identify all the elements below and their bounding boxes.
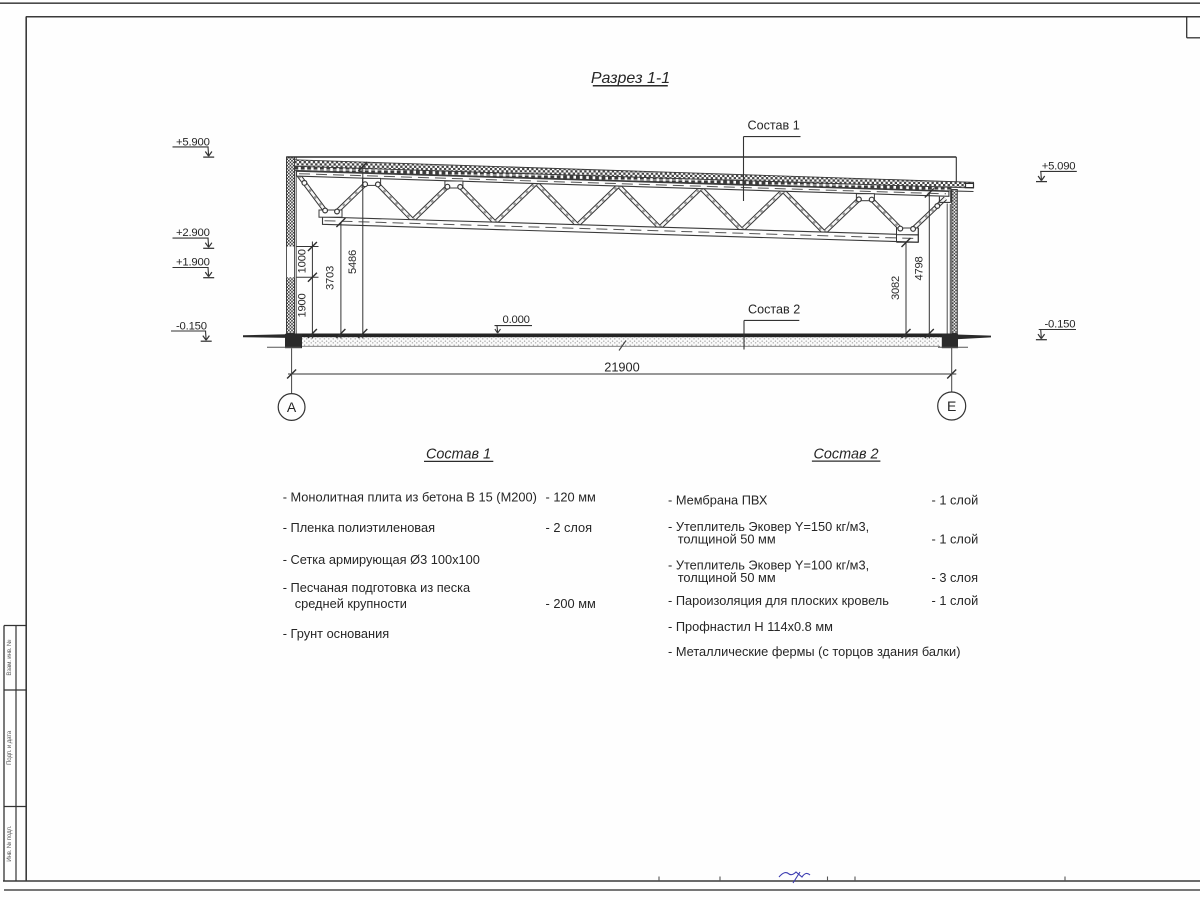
- svg-text:- 3 слоя: - 3 слоя: [932, 570, 979, 585]
- svg-text:- Профнастил Н 114х0.8 мм: - Профнастил Н 114х0.8 мм: [668, 619, 833, 634]
- svg-text:толщиной 50 мм: толщиной 50 мм: [678, 532, 776, 547]
- svg-text:5486: 5486: [347, 250, 359, 274]
- svg-text:Подп. и дата: Подп. и дата: [6, 730, 13, 765]
- svg-text:+1.900: +1.900: [176, 256, 210, 268]
- svg-text:- Пленка полиэтиленовая: - Пленка полиэтиленовая: [283, 520, 435, 535]
- svg-text:- Грунт основания: - Грунт основания: [283, 626, 390, 641]
- svg-text:Разрез 1-1: Разрез 1-1: [591, 70, 670, 87]
- svg-text:+2.900: +2.900: [176, 227, 210, 239]
- svg-text:Инв. № подл.: Инв. № подл.: [6, 825, 13, 862]
- svg-text:- Сетка армирующая Ø3 100х100: - Сетка армирующая Ø3 100х100: [283, 552, 480, 567]
- svg-text:средней крупности: средней крупности: [295, 596, 407, 611]
- svg-text:- Металлические фермы (с торцо: - Металлические фермы (с торцов здания б…: [668, 644, 960, 659]
- svg-text:4798: 4798: [914, 256, 926, 280]
- svg-text:21900: 21900: [604, 359, 640, 374]
- svg-text:-0.150: -0.150: [1045, 318, 1076, 330]
- svg-text:3082: 3082: [890, 276, 902, 300]
- svg-text:- 2 слоя: - 2 слоя: [546, 520, 593, 535]
- svg-text:А: А: [287, 399, 297, 415]
- svg-text:- 1 слой: - 1 слой: [932, 493, 979, 508]
- svg-text:Состав 2: Состав 2: [748, 302, 800, 316]
- svg-text:- Песчаная подготовка из песка: - Песчаная подготовка из песка: [283, 580, 471, 595]
- svg-text:0.000: 0.000: [503, 314, 530, 326]
- svg-text:- 200 мм: - 200 мм: [546, 596, 596, 611]
- svg-text:1900: 1900: [296, 293, 308, 317]
- svg-text:- 1 слой: - 1 слой: [932, 593, 979, 608]
- svg-text:толщиной 50 мм: толщиной 50 мм: [678, 570, 776, 585]
- svg-text:- Пароизоляция для плоских кро: - Пароизоляция для плоских кровель: [668, 593, 889, 608]
- svg-text:Взам. инв. №: Взам. инв. №: [6, 639, 13, 675]
- svg-text:Е: Е: [947, 398, 956, 414]
- svg-text:- Монолитная плита из бетона В: - Монолитная плита из бетона В 15 (М200): [283, 490, 537, 505]
- svg-text:Состав 1: Состав 1: [426, 446, 491, 462]
- svg-text:- 120 мм: - 120 мм: [546, 490, 596, 505]
- svg-text:1000: 1000: [296, 249, 308, 273]
- svg-text:- Мембрана ПВХ: - Мембрана ПВХ: [668, 493, 768, 508]
- svg-text:+5.090: +5.090: [1042, 161, 1076, 173]
- svg-text:- 1 слой: - 1 слой: [932, 532, 979, 547]
- svg-text:3703: 3703: [325, 266, 337, 290]
- svg-text:Состав 1: Состав 1: [748, 118, 800, 132]
- svg-text:Состав 2: Состав 2: [814, 446, 879, 462]
